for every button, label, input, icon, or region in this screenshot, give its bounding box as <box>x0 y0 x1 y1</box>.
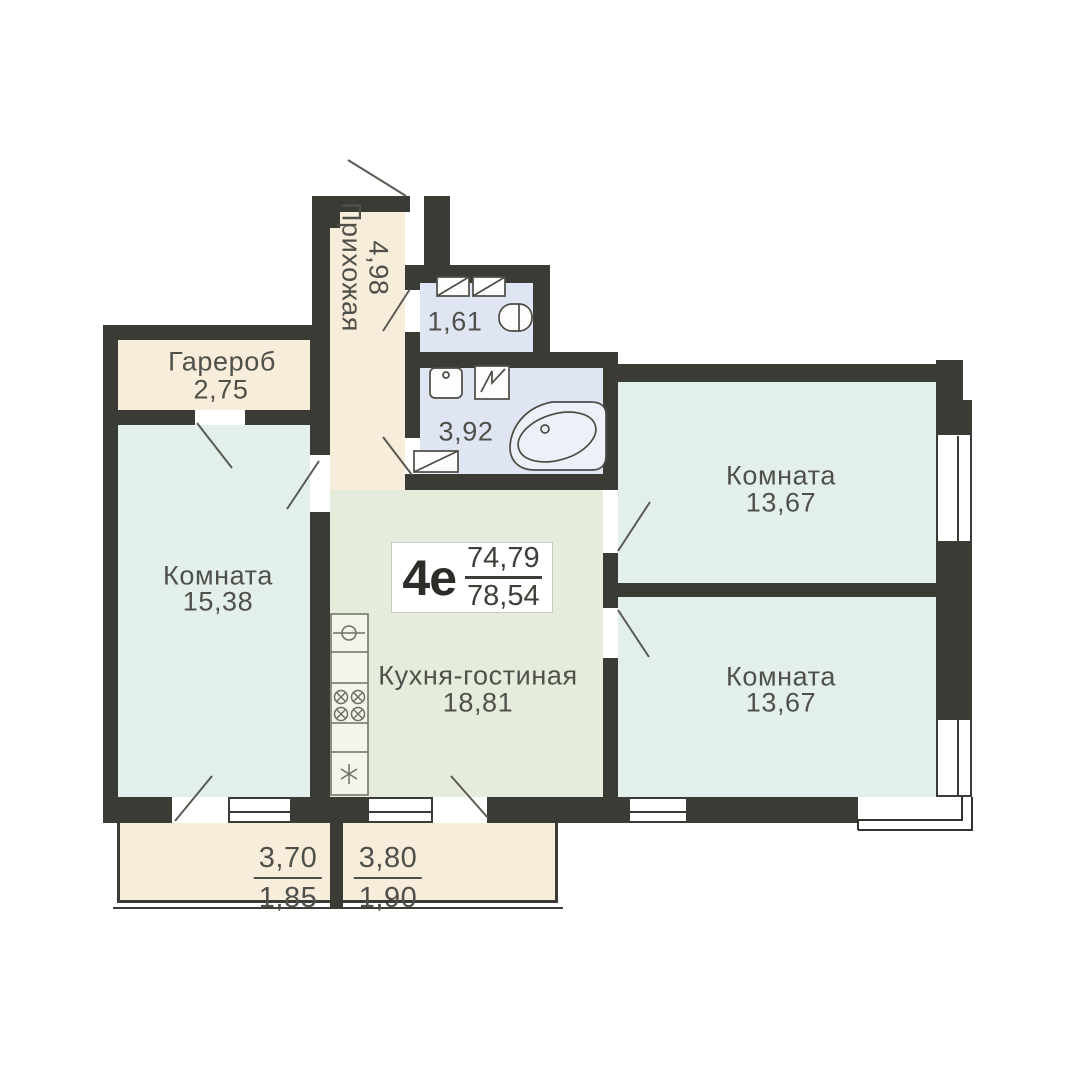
window <box>628 797 688 823</box>
window <box>936 433 972 543</box>
wall <box>405 352 618 368</box>
wc-area-label: 1,61 <box>428 307 483 338</box>
wall <box>310 340 330 455</box>
wall <box>487 797 628 823</box>
wall <box>405 265 550 283</box>
wall <box>245 410 330 425</box>
window <box>936 718 972 797</box>
balcony-outer-line <box>113 907 563 909</box>
wall <box>103 797 172 823</box>
balcony-right-full-area: 3,80 <box>354 842 422 879</box>
room-bottom-right-area-label: 13,67 <box>746 688 817 719</box>
unit-badge: 4е 74,79 78,54 <box>391 542 553 613</box>
unit-type-label: 4е <box>402 553 456 603</box>
wall <box>603 553 618 608</box>
wall <box>330 797 343 907</box>
wall <box>603 364 936 382</box>
wall <box>405 332 420 438</box>
wall <box>603 583 936 597</box>
room-top-right-area-label: 13,67 <box>746 488 817 519</box>
wall <box>103 410 195 425</box>
room-kitchen <box>330 490 603 797</box>
wall <box>424 196 450 270</box>
wall <box>103 325 118 823</box>
unit-living-area: 74,79 <box>465 544 542 579</box>
unit-areas: 74,79 78,54 <box>465 544 542 611</box>
wall <box>405 265 420 290</box>
balcony-right-reduced-area: 1,90 <box>354 879 422 915</box>
wall <box>603 658 618 797</box>
wall <box>963 400 972 433</box>
wall <box>533 265 550 358</box>
hallway-area-label: 4,98 <box>363 241 394 296</box>
window-balcony-door <box>367 797 433 823</box>
wardrobe-name-label: Гарероб <box>168 347 276 378</box>
floor-plan: Прихожая 4,98 Гарероб 2,75 1,61 3,92 Ком… <box>0 0 1080 1080</box>
window <box>228 797 292 823</box>
room-left-area-label: 15,38 <box>183 587 254 618</box>
balcony-right-label: 3,80 1,90 <box>354 842 422 915</box>
wall <box>936 360 963 433</box>
wall <box>310 512 330 797</box>
balcony-left-label: 3,70 1,85 <box>254 842 322 915</box>
balcony-railing <box>858 797 972 830</box>
wall <box>936 543 972 718</box>
bathroom-area-label: 3,92 <box>439 417 494 448</box>
wall <box>312 196 330 340</box>
wall <box>688 797 858 823</box>
unit-total-area: 78,54 <box>467 579 540 611</box>
wall <box>405 474 618 490</box>
kitchen-area-label: 18,81 <box>443 688 514 719</box>
balcony-left-reduced-area: 1,85 <box>254 879 322 915</box>
wardrobe-area-label: 2,75 <box>194 375 249 406</box>
wall <box>103 325 330 340</box>
balcony-left-full-area: 3,70 <box>254 842 322 879</box>
